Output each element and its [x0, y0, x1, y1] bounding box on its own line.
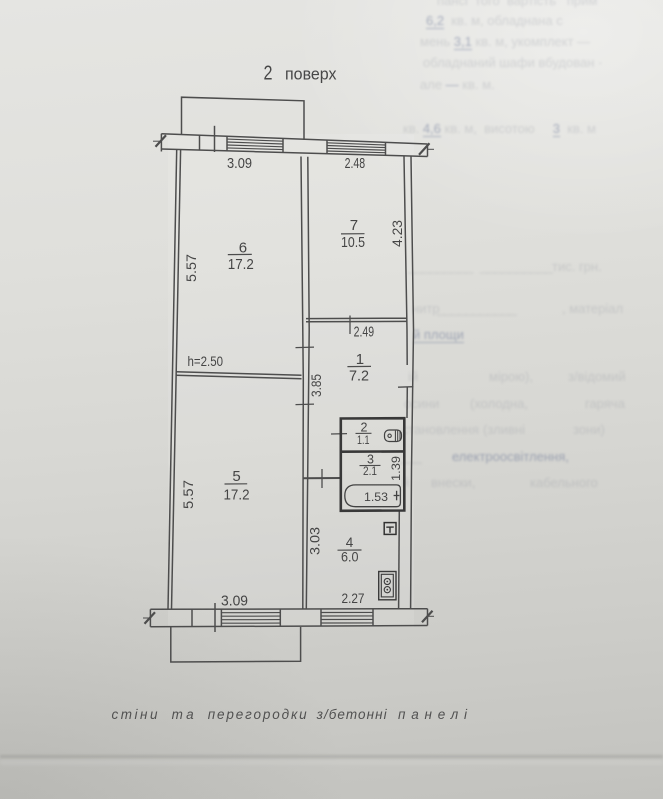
svg-text:2.27: 2.27: [342, 590, 365, 606]
svg-text:10.5: 10.5: [341, 234, 365, 251]
svg-text:6: 6: [239, 240, 247, 257]
svg-text:3.03: 3.03: [308, 527, 323, 555]
svg-text:панелі: панелі: [398, 707, 468, 722]
svg-text:2.1: 2.1: [363, 466, 377, 478]
svg-text:2: 2: [264, 62, 273, 85]
svg-text:перегородки: перегородки: [208, 707, 307, 722]
svg-text:1.1: 1.1: [357, 435, 370, 447]
svg-text:1: 1: [356, 351, 364, 368]
svg-text:з/бетонні: з/бетонні: [316, 707, 388, 722]
svg-text:7.2: 7.2: [349, 368, 369, 385]
svg-text:h=2.50: h=2.50: [188, 353, 224, 369]
svg-text:5.57: 5.57: [184, 254, 199, 282]
svg-text:та: та: [172, 707, 194, 722]
svg-text:4.23: 4.23: [390, 220, 405, 247]
svg-text:7: 7: [350, 217, 358, 234]
svg-text:3.09: 3.09: [227, 155, 252, 172]
svg-text:6.0: 6.0: [341, 550, 359, 565]
svg-text:3.85: 3.85: [309, 374, 324, 397]
svg-text:2.49: 2.49: [354, 324, 375, 341]
svg-text:17.2: 17.2: [228, 256, 254, 273]
svg-text:стіни: стіни: [112, 707, 158, 722]
svg-text:1.39: 1.39: [391, 456, 403, 481]
svg-text:3.09: 3.09: [221, 593, 248, 610]
svg-text:поверх: поверх: [285, 66, 337, 84]
svg-text:17.2: 17.2: [224, 487, 250, 504]
svg-text:5.57: 5.57: [181, 480, 196, 509]
svg-text:4: 4: [346, 535, 354, 550]
svg-text:2.48: 2.48: [345, 155, 366, 172]
svg-text:5: 5: [232, 468, 240, 485]
svg-text:1.53: 1.53: [364, 492, 388, 504]
svg-text:2: 2: [361, 421, 368, 435]
svg-text:3: 3: [367, 453, 374, 467]
